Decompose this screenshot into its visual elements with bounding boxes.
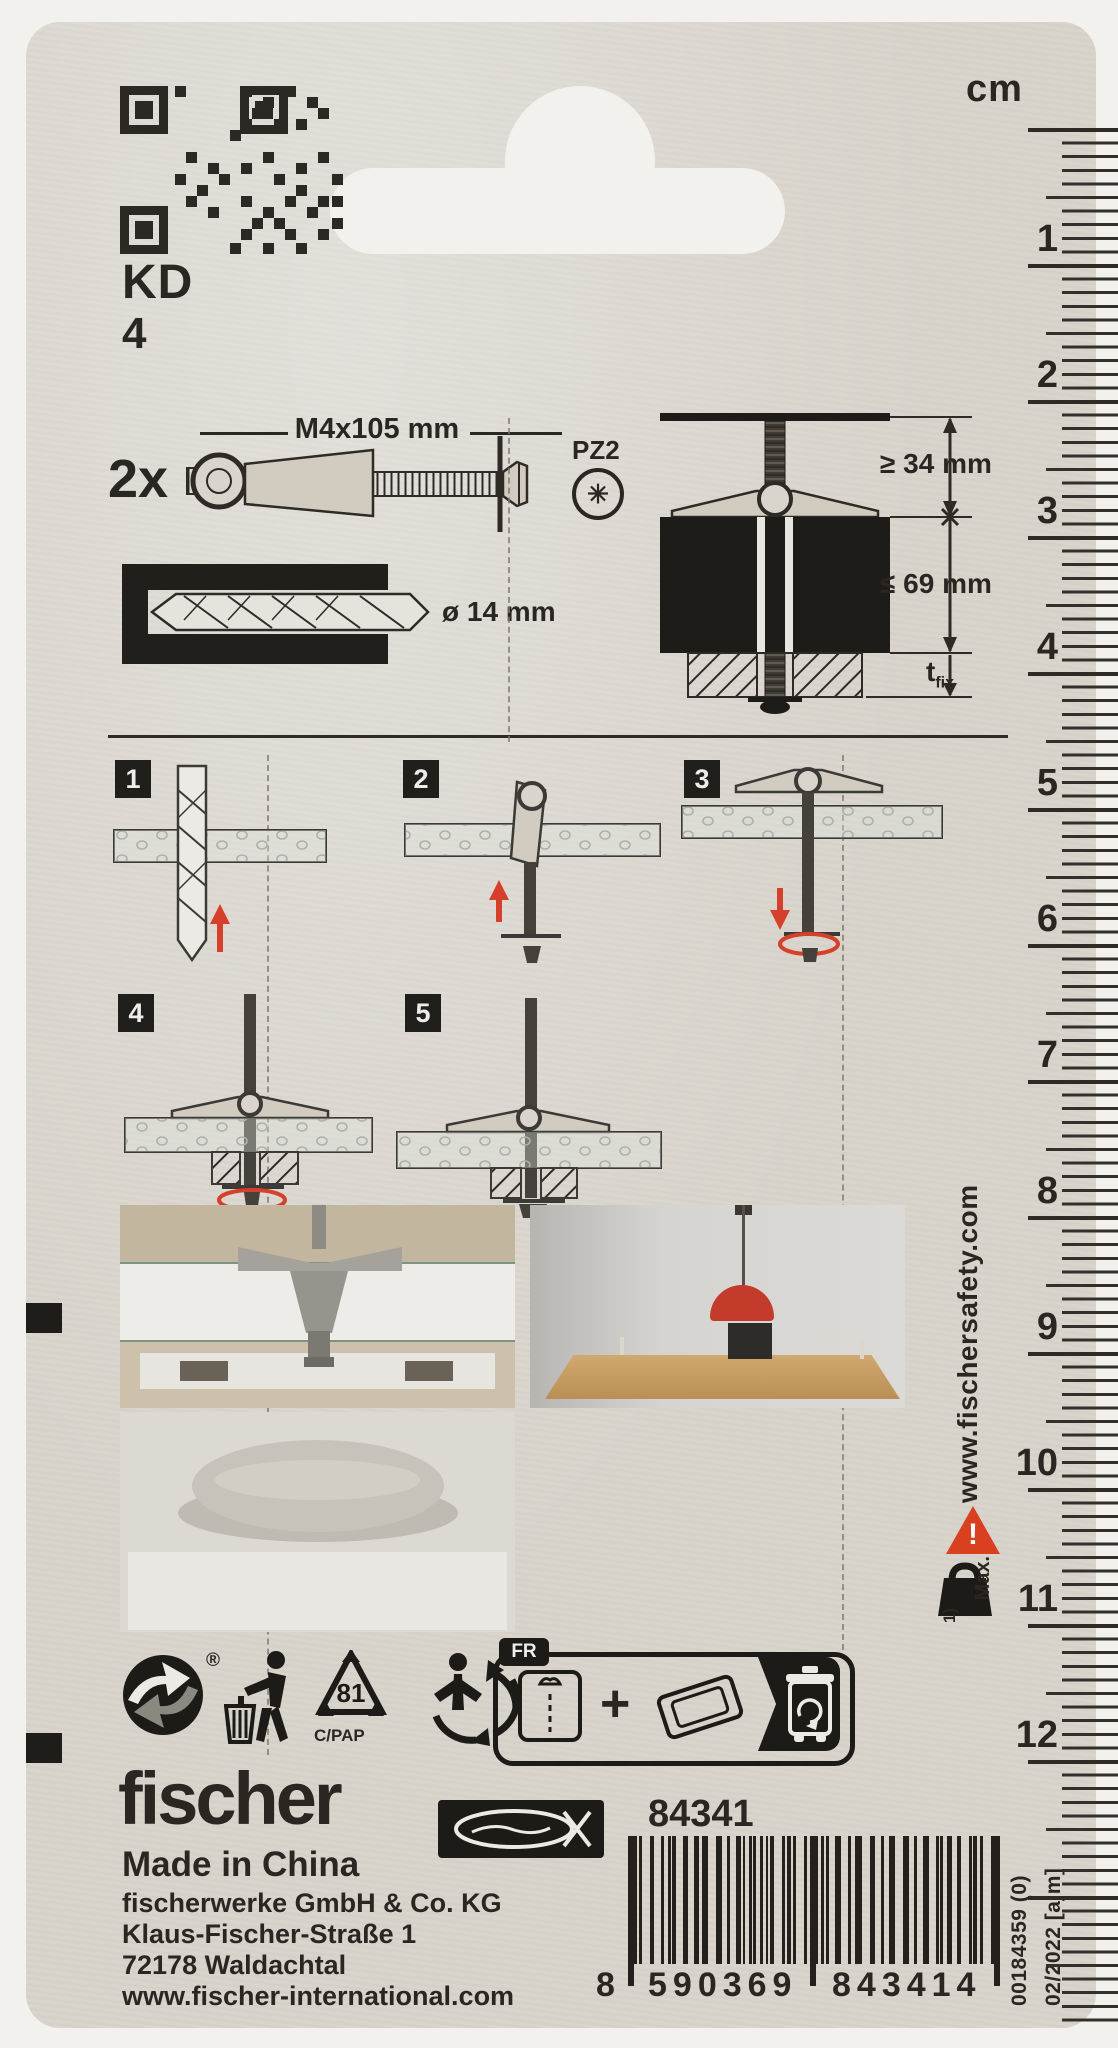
step5-finished-illustration bbox=[395, 990, 665, 1225]
step4-tighten-illustration bbox=[112, 990, 382, 1225]
tidyman-icon bbox=[224, 1650, 304, 1744]
fr-label: FR bbox=[499, 1638, 549, 1666]
brand-wordmark: fischer bbox=[118, 1762, 340, 1836]
material-code-label: C/PAP bbox=[314, 1726, 365, 1746]
article-number: 84341 bbox=[648, 1793, 754, 1836]
drill-bit-drawing bbox=[118, 560, 448, 670]
application-photo-room bbox=[530, 1205, 905, 1408]
qr-finder-icon bbox=[120, 206, 168, 254]
blister-card-icon bbox=[516, 1668, 590, 1744]
company-city: 72178 Waldachtal bbox=[122, 1950, 514, 1981]
edge-mark bbox=[26, 1733, 62, 1763]
ruler-cm-line bbox=[1028, 1624, 1118, 1628]
company-street: Klaus-Fischer-Straße 1 bbox=[122, 1919, 514, 1950]
ruler-cm-line bbox=[1028, 672, 1118, 676]
company-name: fischerwerke GmbH & Co. KG bbox=[122, 1888, 514, 1919]
ruler-cm-number: 6 bbox=[998, 898, 1058, 941]
svg-text:81: 81 bbox=[337, 1678, 366, 1708]
ruler-cm-number: 2 bbox=[998, 354, 1058, 397]
min-cavity-label: ≥ 34 mm bbox=[880, 448, 992, 480]
warning-exclamation: ! bbox=[968, 1518, 978, 1551]
qr-code-icon bbox=[120, 86, 288, 254]
ruler-cm-number: 3 bbox=[998, 490, 1058, 533]
ruler-cm-line bbox=[1028, 1080, 1118, 1084]
barcode-digits-group1: 590369 bbox=[648, 1966, 797, 2005]
ruler-cm-line bbox=[1028, 1216, 1118, 1220]
quantity-label: 2x bbox=[108, 448, 168, 510]
qr-finder-icon bbox=[240, 86, 288, 134]
recycle-bin-icon bbox=[782, 1664, 838, 1746]
photo-table bbox=[545, 1355, 900, 1399]
application-photo-detector bbox=[120, 1412, 515, 1632]
ruler-cm-number: 5 bbox=[998, 762, 1058, 805]
footnote-marker: 1) bbox=[940, 1608, 960, 1623]
print-code-1: 00184359 (0) bbox=[1008, 1856, 1032, 2006]
step1-drill-illustration bbox=[112, 756, 382, 968]
registered-mark: ® bbox=[206, 1650, 220, 1672]
ruler-cm-line bbox=[1028, 1488, 1118, 1492]
resin-code-triangle-icon: 81 bbox=[314, 1650, 388, 1722]
photo-detector-top bbox=[215, 1460, 420, 1500]
safety-website: www.fischersafety.com bbox=[952, 1183, 998, 1503]
ruler-cm-line bbox=[1028, 1352, 1118, 1356]
ruler-cm-number: 12 bbox=[998, 1714, 1058, 1757]
plus-sign: + bbox=[600, 1678, 630, 1730]
max-load-label: Max. bbox=[972, 1556, 995, 1600]
ruler-cm-line bbox=[1028, 128, 1118, 132]
barcode-guard bbox=[810, 1836, 816, 1986]
drill-diameter-label: ø 14 mm bbox=[442, 596, 556, 628]
ruler-cm-number: 1 bbox=[998, 218, 1058, 261]
application-photo-ceiling bbox=[120, 1205, 515, 1408]
ruler-cm-number: 11 bbox=[998, 1578, 1058, 1621]
drive-type-label: PZ2 bbox=[572, 435, 620, 466]
barcode-guard bbox=[994, 1836, 1000, 1986]
barcode-lead-digit: 8 bbox=[596, 1966, 621, 2005]
green-dot-icon bbox=[120, 1652, 206, 1738]
ruler-cm-number: 4 bbox=[998, 626, 1058, 669]
ruler-cm-line bbox=[1028, 944, 1118, 948]
photo-lamp-cord bbox=[742, 1205, 745, 1287]
company-website: www.fischer-international.com bbox=[122, 1981, 514, 2012]
euro-slot-hook-hole bbox=[505, 86, 655, 236]
qr-modules bbox=[175, 86, 186, 97]
ruler-cm-line bbox=[1028, 1896, 1118, 1900]
product-size: 4 bbox=[122, 310, 146, 358]
ruler-cm-number: 10 bbox=[998, 1442, 1058, 1485]
fischer-fish-logo bbox=[438, 1800, 604, 1858]
photo-table-object bbox=[728, 1323, 772, 1359]
toggle-anchor-drawing bbox=[185, 420, 585, 550]
photo-white-band bbox=[128, 1552, 507, 1630]
ruler-cm-line bbox=[1028, 1760, 1118, 1764]
max-wall-label: ≤ 69 mm bbox=[880, 568, 992, 600]
crease-line bbox=[508, 418, 510, 742]
qr-finder-icon bbox=[120, 86, 168, 134]
product-line: KD bbox=[122, 258, 193, 308]
photo-toggle-render bbox=[220, 1205, 420, 1380]
barcode-digits-group2: 843414 bbox=[832, 1966, 981, 2005]
ruler-unit-label: cm bbox=[966, 68, 1023, 111]
ruler-mm-ticks bbox=[1062, 128, 1118, 2024]
company-address: fischerwerke GmbH & Co. KG Klaus-Fischer… bbox=[122, 1888, 514, 2012]
origin-label: Made in China bbox=[122, 1845, 359, 1885]
blister-tray-icon bbox=[652, 1672, 748, 1742]
photo-candle bbox=[860, 1341, 864, 1359]
ruler-cm-number: 7 bbox=[998, 1034, 1058, 1077]
ruler-cm-line bbox=[1028, 808, 1118, 812]
photo-candle bbox=[830, 1337, 834, 1355]
ruler-cm-line bbox=[1028, 400, 1118, 404]
section-divider bbox=[108, 735, 1008, 738]
ruler-cm-number: 8 bbox=[998, 1170, 1058, 1213]
photo-red-lamp bbox=[710, 1285, 774, 1321]
ruler-cm-line bbox=[1028, 264, 1118, 268]
step3-toggle-open-illustration bbox=[678, 756, 946, 968]
step2-insert-illustration bbox=[395, 756, 665, 968]
edge-mark bbox=[26, 1303, 62, 1333]
ruler-cm-line bbox=[1028, 536, 1118, 540]
pozidriv-icon: ✳ bbox=[572, 468, 624, 520]
ruler-cm-number: 9 bbox=[998, 1306, 1058, 1349]
photo-candle bbox=[620, 1337, 624, 1355]
tfix-label: tfix bbox=[926, 656, 954, 693]
barcode-guard bbox=[628, 1836, 634, 1986]
packaging-page: KD 4 M4x105 mm 2x bbox=[0, 0, 1118, 2048]
